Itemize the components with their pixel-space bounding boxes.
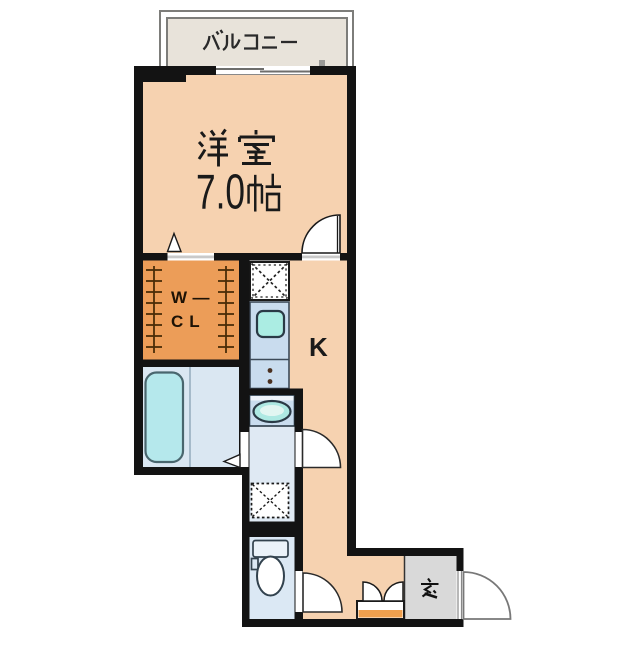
svg-text:W—: W— xyxy=(171,288,215,307)
svg-text:CL: CL xyxy=(171,312,206,331)
svg-text:7.0: 7.0 xyxy=(196,165,245,220)
svg-text:K: K xyxy=(309,332,328,362)
